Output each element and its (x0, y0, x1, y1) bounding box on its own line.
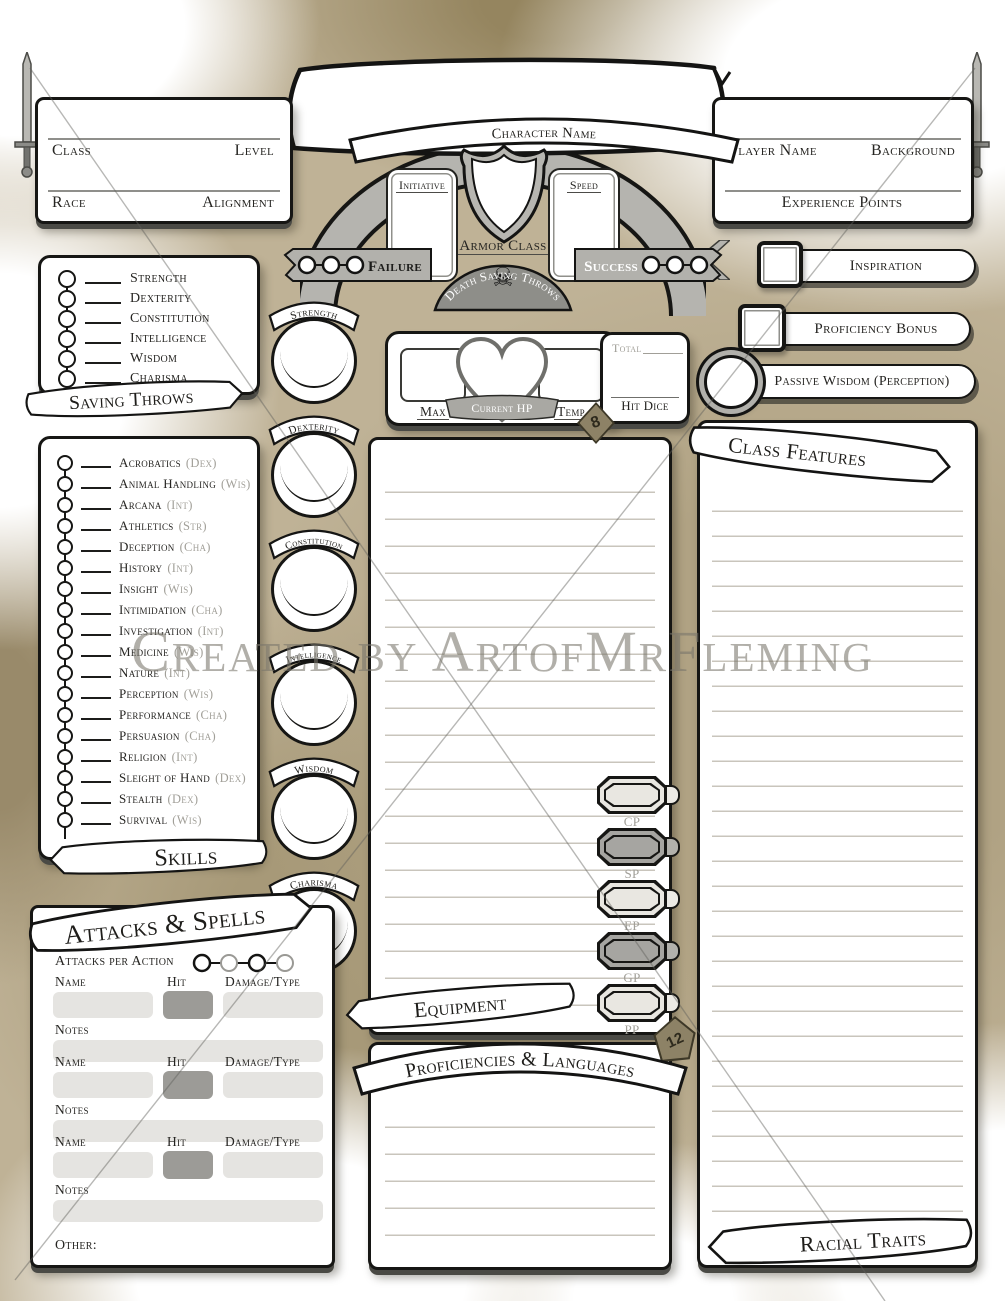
class-label: Class (52, 142, 91, 160)
attack-damage-label: Damage/Type (225, 1134, 300, 1150)
skill-modifier-line[interactable] (81, 564, 111, 573)
success-slot-circle[interactable] (667, 257, 683, 273)
attack-damage-field[interactable] (223, 992, 323, 1018)
experience-line[interactable] (725, 190, 961, 192)
success-label: Success (584, 259, 638, 275)
skill-modifier-line[interactable] (81, 690, 111, 699)
initiative-label-wrap: Initiative (388, 178, 456, 193)
passive-wisdom-bar: Passive Wisdom (Perception) (748, 364, 976, 399)
attack-slot-circle[interactable] (194, 955, 210, 971)
attacks-other-label: Other: (55, 1238, 97, 1254)
skill-modifier-line[interactable] (81, 753, 111, 762)
skill-ability: (Int) (167, 498, 193, 513)
skill-name: Athletics (119, 518, 174, 534)
attack-notes-label: Notes (55, 1022, 89, 1038)
skill-name: History (119, 560, 162, 576)
skill-modifier-line[interactable] (81, 711, 111, 720)
attack-damage-label: Damage/Type (225, 974, 300, 990)
skills-banner-label: Skills (154, 843, 218, 871)
skill-name: Sleight of Hand (119, 770, 210, 786)
currency-sp-slot[interactable] (597, 828, 667, 866)
saving-throw-checkbox[interactable] (58, 350, 76, 368)
saving-throw-modifier-line[interactable] (85, 274, 121, 284)
attack-name-label: Name (55, 1134, 86, 1150)
skill-modifier-line[interactable] (81, 648, 111, 657)
skill-modifier-line[interactable] (81, 795, 111, 804)
skill-ability: (Int) (164, 666, 190, 681)
hit-dice-total-label: Total (612, 341, 642, 356)
skill-modifier-line[interactable] (81, 522, 111, 531)
skill-name: Arcana (119, 497, 162, 513)
skill-checkbox[interactable] (57, 686, 73, 702)
skill-ability: (Dex) (186, 456, 217, 471)
skill-checkbox[interactable] (57, 644, 73, 660)
attack-hit-field[interactable] (163, 991, 213, 1019)
attack-name-field[interactable] (53, 1072, 153, 1098)
skill-checkbox[interactable] (57, 728, 73, 744)
skill-modifier-line[interactable] (81, 732, 111, 741)
skill-ability: (Cha) (180, 540, 211, 555)
skill-modifier-line[interactable] (81, 606, 111, 615)
skill-name: Stealth (119, 791, 163, 807)
attack-hit-label: Hit (167, 1054, 186, 1070)
skill-ability: (Cha) (185, 729, 216, 744)
passive-wisdom-label: Passive Wisdom (Perception) (774, 374, 949, 390)
saving-throw-checkbox[interactable] (58, 290, 76, 308)
character-sheet: Class Level Race Alignment Player Name B… (0, 0, 1005, 1301)
skill-name: Investigation (119, 623, 193, 639)
attack-hit-field[interactable] (163, 1071, 213, 1099)
skill-ability: (Wis) (221, 477, 251, 492)
skill-checkbox[interactable] (57, 518, 73, 534)
hit-dice-label: Hit Dice (611, 397, 679, 414)
skill-ability: (Str) (179, 519, 207, 534)
skill-name: Acrobatics (119, 455, 181, 471)
class-features-lines[interactable] (712, 487, 963, 1229)
skill-modifier-line[interactable] (81, 459, 111, 468)
skill-checkbox[interactable] (57, 791, 73, 807)
inspiration-label: Inspiration (850, 258, 922, 275)
currency-ep-slot[interactable] (597, 880, 667, 918)
skill-ability: (Dex) (168, 792, 199, 807)
skill-ability: (Int) (172, 750, 198, 765)
skill-name: Nature (119, 665, 159, 681)
skill-name: Survival (119, 812, 167, 828)
success-slot-circle[interactable] (691, 257, 707, 273)
skill-checkbox[interactable] (57, 560, 73, 576)
equipment-box: CP SP EP GP PP (368, 437, 672, 1035)
initiative-label: Initiative (396, 178, 448, 193)
skill-modifier-line[interactable] (81, 585, 111, 594)
experience-points-label: Experience Points (782, 194, 903, 212)
attack-name-label: Name (55, 974, 86, 990)
skill-checkbox[interactable] (57, 581, 73, 597)
skill-modifier-line[interactable] (81, 774, 111, 783)
ability-name: Wisdom (293, 762, 334, 777)
saving-throw-label: Constitution (130, 311, 210, 327)
skill-name: Persuasion (119, 728, 180, 744)
player-background-line[interactable] (725, 138, 961, 140)
skills-box: Acrobatics (Dex) Animal Handling (Wis) A… (38, 436, 260, 860)
attack-notes-field[interactable] (53, 1200, 323, 1222)
skill-checkbox[interactable] (57, 476, 73, 492)
svg-text:Wisdom: Wisdom (293, 762, 334, 777)
hit-dice-total-line[interactable] (643, 353, 683, 354)
skill-ability: (Wis) (174, 645, 204, 660)
character-info-right-box: Player Name Background Experience Points (712, 97, 974, 224)
skill-name: Medicine (119, 644, 169, 660)
speed-label-wrap: Speed (550, 178, 618, 193)
failure-label: Failure (368, 259, 422, 275)
ability-banner: Intelligence (268, 638, 360, 676)
skill-ability: (Wis) (184, 687, 214, 702)
attacks-spells-box: Attacks per Action Name Hit Damage/Type … (30, 905, 335, 1268)
current-hp-label: Current HP (471, 401, 532, 415)
ability-banner: Wisdom (268, 752, 360, 790)
saving-throw-modifier-line[interactable] (85, 294, 121, 304)
saving-throw-label: Wisdom (130, 351, 177, 367)
saving-throw-modifier-line[interactable] (85, 354, 121, 364)
skill-modifier-line[interactable] (81, 480, 111, 489)
d8-die-icon: 8 (577, 402, 615, 444)
proficiency-bonus-bar: Proficiency Bonus (781, 312, 971, 346)
skill-ability: (Int) (167, 561, 193, 576)
skill-checkbox[interactable] (57, 539, 73, 555)
speed-label: Speed (567, 178, 601, 193)
saving-throw-checkbox[interactable] (58, 310, 76, 328)
skill-name: Performance (119, 707, 191, 723)
inspiration-box[interactable] (757, 241, 803, 288)
class-level-line[interactable] (48, 138, 280, 140)
saving-throw-checkbox[interactable] (58, 330, 76, 348)
attack-damage-field[interactable] (223, 1072, 323, 1098)
skill-name: Intimidation (119, 602, 186, 618)
success-slot-circle[interactable] (643, 257, 659, 273)
death-save-success-ribbon: Success (573, 246, 723, 284)
skill-ability: (Int) (198, 624, 224, 639)
saving-throw-modifier-line[interactable] (85, 314, 121, 324)
skill-name: Insight (119, 581, 158, 597)
attack-damage-label: Damage/Type (225, 1054, 300, 1070)
skill-checkbox[interactable] (57, 623, 73, 639)
proficiencies-lines[interactable] (385, 1101, 655, 1261)
skill-ability: (Wis) (172, 813, 202, 828)
skill-checkbox[interactable] (57, 749, 73, 765)
skill-name: Perception (119, 686, 179, 702)
failure-slot-circle[interactable] (299, 257, 315, 273)
death-save-failure-ribbon: Failure (283, 246, 433, 284)
attack-hit-field[interactable] (163, 1151, 213, 1179)
skill-modifier-line[interactable] (81, 669, 111, 678)
attack-notes-label: Notes (55, 1182, 89, 1198)
skill-modifier-line[interactable] (81, 543, 111, 552)
race-alignment-line[interactable] (48, 190, 280, 192)
failure-slot-circle[interactable] (323, 257, 339, 273)
skill-name: Animal Handling (119, 476, 216, 492)
attack-entry: Name Hit Damage/Type Notes (33, 1054, 332, 1132)
player-name-label: Player Name (729, 142, 817, 160)
proficiency-bonus-box[interactable] (738, 304, 786, 352)
saving-throw-checkbox[interactable] (58, 270, 76, 288)
saving-throw-label: Intelligence (130, 331, 207, 347)
attacks-per-action-slots (191, 952, 301, 974)
skill-checkbox[interactable] (57, 770, 73, 786)
current-hp-ribbon: Current HP (442, 392, 562, 420)
attack-name-label: Name (55, 1054, 86, 1070)
background-label: Background (871, 142, 955, 160)
inspiration-bar: Inspiration (796, 249, 976, 283)
skill-modifier-line[interactable] (81, 816, 111, 825)
currency-gp-slot[interactable] (597, 932, 667, 970)
passive-wisdom-circle[interactable] (704, 355, 758, 409)
attack-slot-circle[interactable] (221, 955, 237, 971)
d8-die-number: 8 (571, 397, 621, 449)
class-features-box (697, 420, 978, 1268)
saving-throw-label: Dexterity (130, 291, 192, 307)
skill-name: Deception (119, 539, 175, 555)
skill-checkbox[interactable] (57, 665, 73, 681)
skill-ability: (Wis) (163, 582, 193, 597)
ability-banner: Constitution (268, 524, 360, 562)
skill-checkbox[interactable] (57, 812, 73, 828)
race-label: Race (52, 194, 86, 212)
attack-damage-field[interactable] (223, 1152, 323, 1178)
skills-banner: Skills (47, 830, 272, 882)
attack-notes-label: Notes (55, 1102, 89, 1118)
attack-entry: Name Hit Damage/Type Notes (33, 1134, 332, 1212)
armor-class-shield[interactable] (458, 136, 550, 246)
character-info-left-box: Class Level Race Alignment (35, 97, 293, 224)
skill-modifier-line[interactable] (81, 627, 111, 636)
ability-banner: Dexterity (268, 410, 360, 448)
alignment-label: Alignment (202, 194, 274, 212)
level-label: Level (235, 142, 274, 160)
attack-slot-circle[interactable] (249, 955, 265, 971)
ability-banner: Strength (268, 296, 360, 334)
skill-ability: (Dex) (215, 771, 246, 786)
attack-hit-label: Hit (167, 1134, 186, 1150)
attack-slot-circle[interactable] (277, 955, 293, 971)
death-saving-throws-dome: ☠ Death Saving Throws (432, 250, 574, 312)
skill-name: Religion (119, 749, 167, 765)
skill-ability: (Cha) (191, 603, 222, 618)
saving-throw-modifier-line[interactable] (85, 334, 121, 344)
saving-throw-label: Strength (130, 271, 187, 287)
skill-checkbox[interactable] (57, 497, 73, 513)
failure-slot-circle[interactable] (347, 257, 363, 273)
skill-checkbox[interactable] (57, 602, 73, 618)
attack-hit-label: Hit (167, 974, 186, 990)
skill-modifier-line[interactable] (81, 501, 111, 510)
skill-checkbox[interactable] (57, 455, 73, 471)
attack-name-field[interactable] (53, 992, 153, 1018)
skill-ability: (Cha) (196, 708, 227, 723)
attack-name-field[interactable] (53, 1152, 153, 1178)
proficiency-bonus-label: Proficiency Bonus (814, 321, 937, 338)
attack-entry: Name Hit Damage/Type Notes (33, 974, 332, 1052)
proficiencies-banner: Proficiencies & Languages (352, 1032, 688, 1098)
currency-cp-slot[interactable] (597, 776, 667, 814)
skill-checkbox[interactable] (57, 707, 73, 723)
